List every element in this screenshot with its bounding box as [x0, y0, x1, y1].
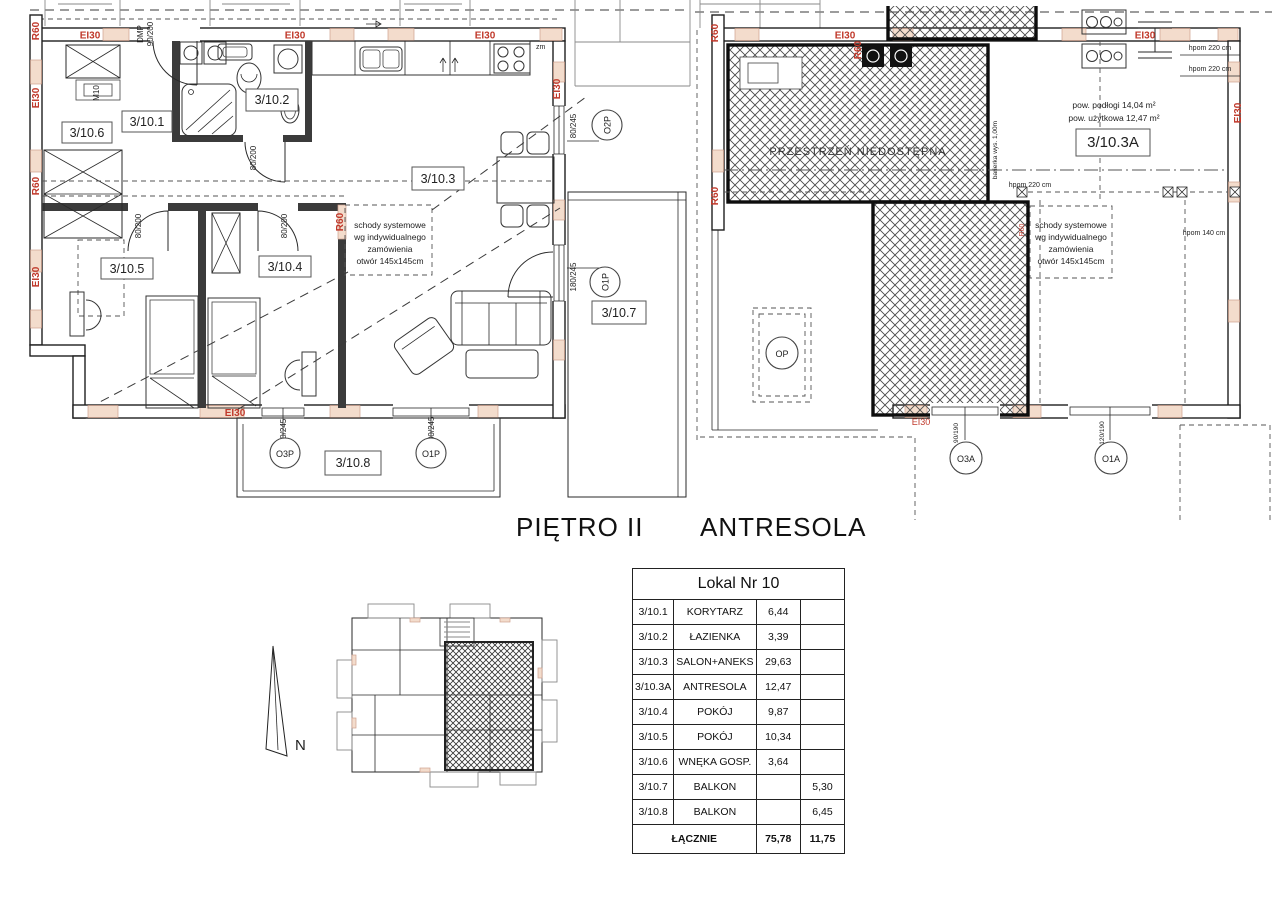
- svg-text:schody systemowe: schody systemowe: [354, 220, 426, 230]
- right-plan-stairs: schody systemowe wg indywidualnego zamów…: [1019, 206, 1112, 278]
- svg-text:wg indywidualnego: wg indywidualnego: [1034, 232, 1107, 242]
- window-dim: 90/190: [953, 423, 960, 443]
- window-tag: O2P: [603, 116, 613, 134]
- r60-label: R60: [31, 21, 42, 40]
- svg-text:zamówienia: zamówienia: [1049, 244, 1094, 254]
- utility-washers: [180, 42, 226, 64]
- left-plan-dim-labels: DMP 90/200 M10 zm 80/200 80/200 80/200 8…: [92, 21, 578, 445]
- door-dim: 80/200: [134, 213, 143, 238]
- door-dmp-size: 90/200: [146, 21, 155, 46]
- left-plan-context-lines: [30, 0, 690, 86]
- ei30-label: EI30: [912, 417, 931, 427]
- room-label: 3/10.3: [421, 172, 456, 186]
- ei30-label: EI30: [31, 266, 42, 287]
- right-plan-bottom-windows: O3A O1A 90/190 120/190: [700, 403, 1270, 520]
- r60-label: R60: [1019, 223, 1026, 236]
- zm-label: zm: [536, 44, 546, 51]
- svg-text:zamówienia: zamówienia: [368, 244, 413, 254]
- window-tag: O1P: [422, 449, 440, 459]
- height-note: hpom 220 cm: [1009, 182, 1052, 189]
- door-dim: 80/200: [249, 145, 258, 170]
- table-row: 3/10.2 ŁAZIENKA 3,39: [633, 625, 845, 650]
- key-plan-building: [337, 604, 557, 787]
- svg-text:wg indywidualnego: wg indywidualnego: [353, 232, 426, 242]
- railing-note: barierka wys. 1,00m: [992, 121, 999, 179]
- window-tag: O3P: [276, 449, 294, 459]
- svg-text:otwór 145x145cm: otwór 145x145cm: [1037, 256, 1104, 266]
- table-row: 3/10.3 SALON+ANEKS 29,63: [633, 650, 845, 675]
- ei30-label: EI30: [285, 31, 306, 42]
- stairs-left: [42, 97, 586, 410]
- r60-label: R60: [335, 212, 346, 231]
- ei30-label: EI30: [835, 31, 856, 42]
- height-note: hpom 220 cm: [1189, 66, 1232, 73]
- room-label: 3/10.8: [336, 456, 371, 470]
- room-label: 3/10.1: [130, 115, 165, 129]
- inaccessible-space-label: PRZESTRZEŃ NIEDOSTĘPNA: [769, 145, 946, 158]
- window-dim: 120/190: [1099, 421, 1106, 445]
- table-row: 3/10.3A ANTRESOLA 12,47: [633, 675, 845, 700]
- usable-area-note: pow. użytkowa 12,47 m²: [1068, 113, 1159, 123]
- key-plan: N: [266, 604, 557, 787]
- height-note: hpom 140 cm: [1183, 230, 1226, 237]
- table-row: 3/10.5 POKÓJ 10,34: [633, 725, 845, 750]
- r60-label: R60: [31, 176, 42, 195]
- left-plan-doors: [128, 41, 298, 251]
- ei30-label: EI30: [225, 408, 246, 419]
- area-table: Lokal Nr 10 3/10.1 KORYTARZ 6,44 3/10.2 …: [632, 568, 845, 854]
- table-row: 3/10.1 KORYTARZ 6,44: [633, 600, 845, 625]
- room-label: 3/10.4: [268, 260, 303, 274]
- room-label: 3/10.5: [110, 262, 145, 276]
- table-total-row: ŁĄCZNIE 75,78 11,75: [633, 825, 845, 854]
- area-table-title: Lokal Nr 10: [633, 569, 845, 600]
- window-tag: O1P: [601, 273, 611, 291]
- room-label: 3/10.3A: [1087, 134, 1139, 151]
- ei30-label: EI30: [80, 31, 101, 42]
- table-row: 3/10.4 POKÓJ 9,87: [633, 700, 845, 725]
- left-plan-windows: [262, 106, 599, 438]
- window-tag: O3A: [957, 454, 975, 464]
- mezzanine-plan-title: ANTRESOLA: [700, 512, 867, 543]
- floor-area-note: pow. podłogi 14,04 m²: [1072, 100, 1155, 110]
- floor-plan-title: PIĘTRO II: [516, 512, 643, 543]
- door-dim: 80/200: [280, 213, 289, 238]
- window-dim: 180/245: [569, 262, 578, 291]
- window-tag: O1A: [1102, 454, 1120, 464]
- r60-label: R60: [710, 186, 721, 205]
- bedroom-furniture: [70, 292, 316, 408]
- room-label: 3/10.6: [70, 126, 105, 140]
- window-dim: 80/245: [569, 113, 578, 138]
- r60-label: R60: [853, 40, 864, 59]
- ei30-label: EI30: [1135, 31, 1156, 42]
- ei30-label: EI30: [1233, 102, 1244, 123]
- door-dmp-label: DMP: [136, 25, 145, 43]
- window-tag: OP: [775, 349, 788, 359]
- floor-plan-sheet: EI30 EI30 EI30 R60 EI30 R60 EI30 R60 EI3…: [0, 0, 1280, 898]
- ei30-label: EI30: [31, 87, 42, 108]
- r60-label: R60: [710, 23, 721, 42]
- kitchen: [312, 41, 530, 75]
- ei30-label: EI30: [475, 31, 496, 42]
- height-note: hpom 220 cm: [1189, 45, 1232, 52]
- left-plan-stairs-note: schody systemowe wg indywidualnego zamów…: [353, 220, 426, 266]
- north-arrow: N: [266, 646, 306, 756]
- table-row: 3/10.6 WNĘKA GOSP. 3,64: [633, 750, 845, 775]
- table-row: 3/10.8 BALKON 6,45: [633, 800, 845, 825]
- svg-text:otwór 145x145cm: otwór 145x145cm: [356, 256, 423, 266]
- room-label: 3/10.7: [602, 306, 637, 320]
- table-row: 3/10.7 BALKON 5,30: [633, 775, 845, 800]
- right-plan-skylight: OP: [753, 308, 811, 402]
- room-label: 3/10.2: [255, 93, 290, 107]
- ei30-label: EI30: [552, 78, 563, 99]
- svg-text:schody systemowe: schody systemowe: [1035, 220, 1107, 230]
- key-plan-unit-highlight: [445, 642, 533, 770]
- north-label: N: [295, 737, 306, 754]
- m10-label: M10: [92, 85, 101, 101]
